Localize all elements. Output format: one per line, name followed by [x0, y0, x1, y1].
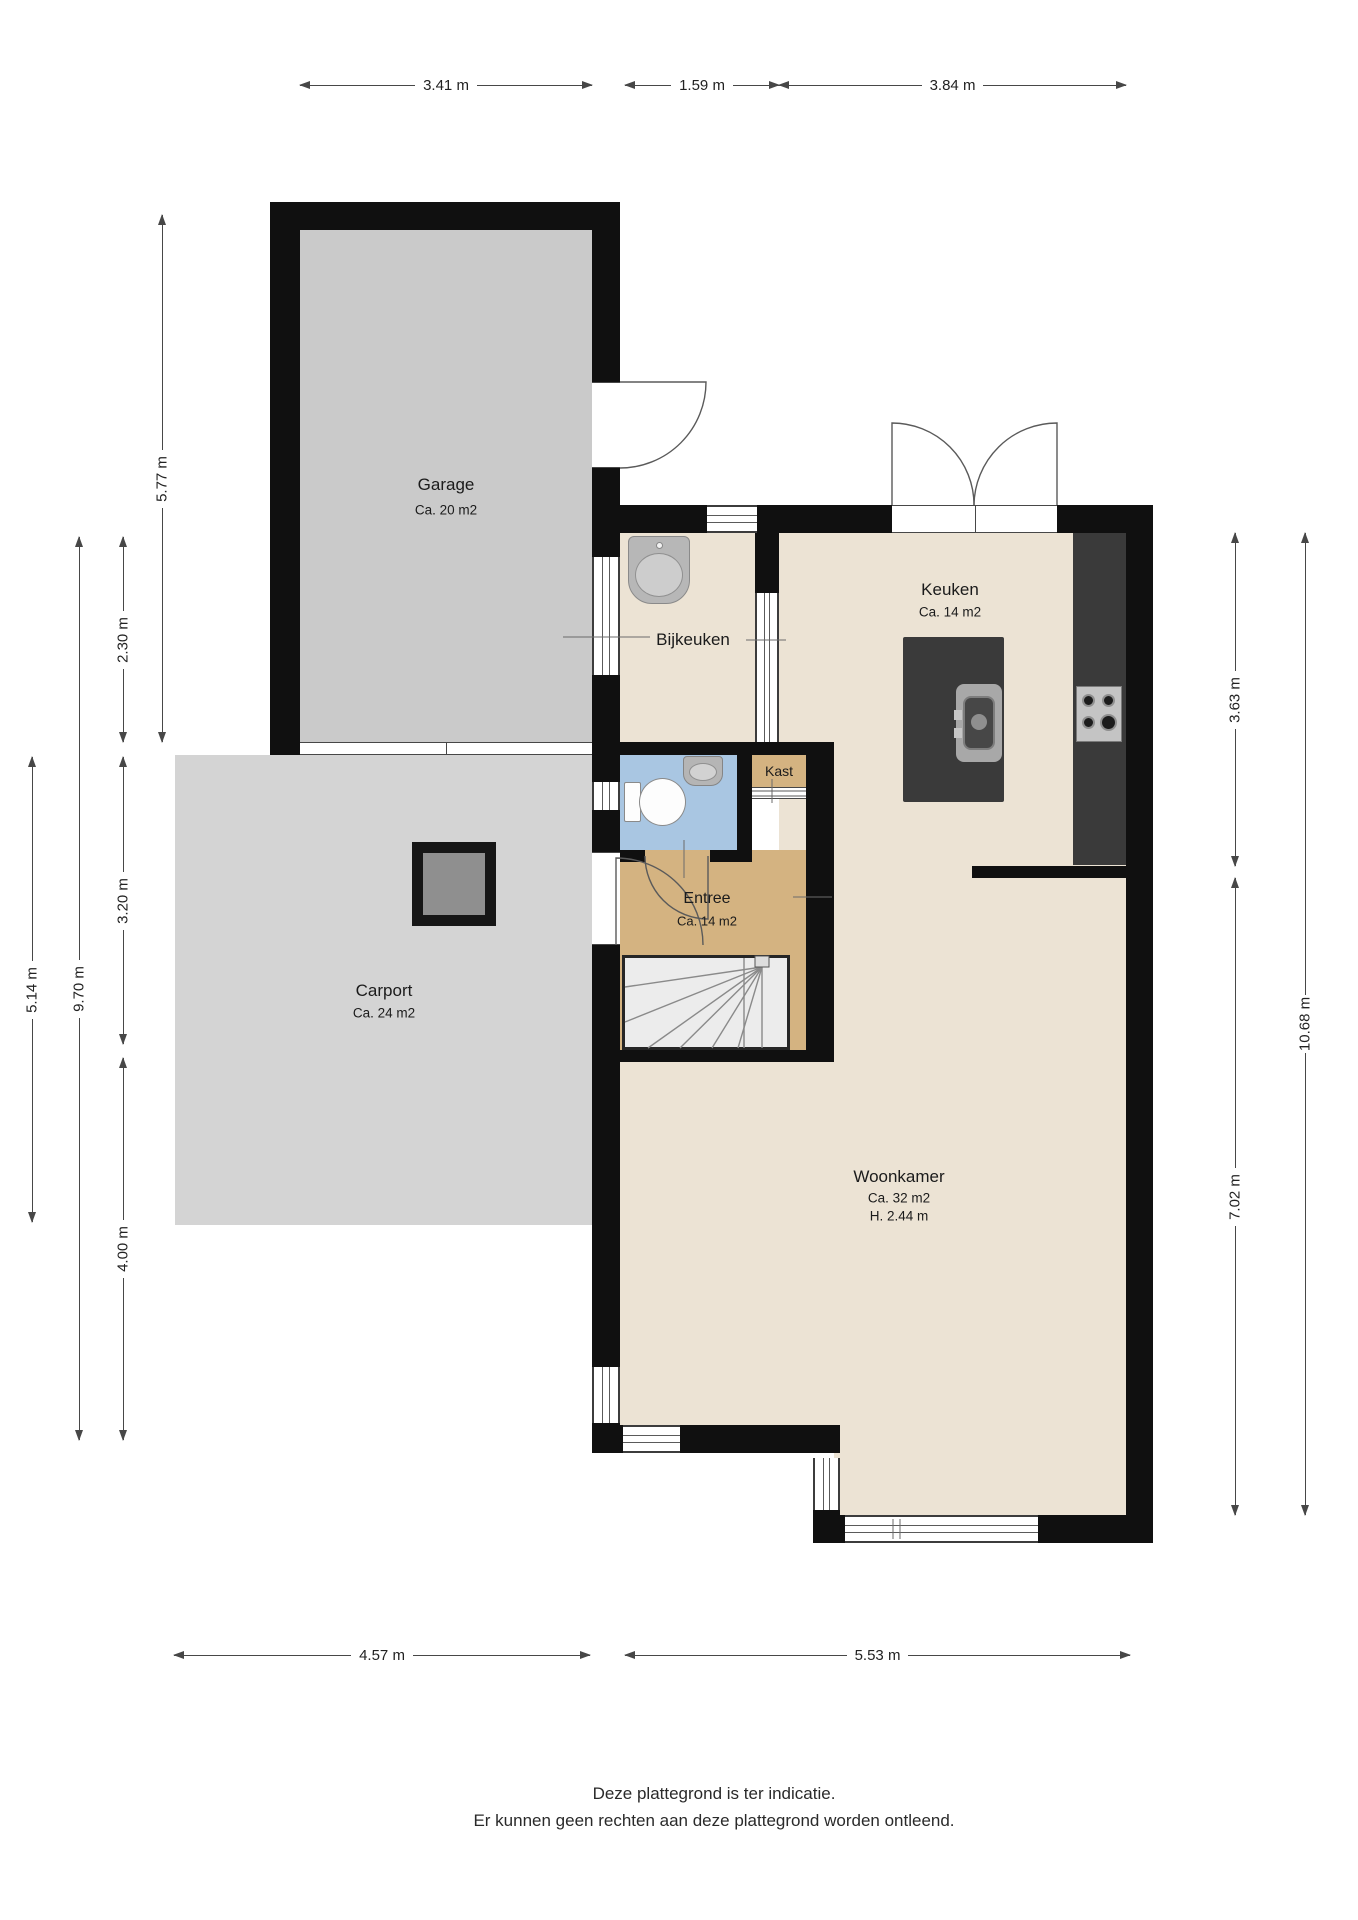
- wall: [270, 202, 592, 230]
- wall: [710, 850, 752, 862]
- toilet-icon: [624, 778, 688, 826]
- dim-label: 7.02 m: [1228, 1174, 1243, 1220]
- floorplan-canvas: Garage Ca. 20 m2 Bijkeuken Keuken Ca. 14…: [0, 0, 1358, 1920]
- sink-handle: [954, 728, 962, 738]
- wall: [592, 505, 707, 533]
- utility-sink-icon: [628, 536, 690, 604]
- front-door-opening: [592, 852, 620, 945]
- wall: [592, 675, 620, 782]
- dim-left-4-00: 4.00 m: [115, 1058, 131, 1440]
- wall: [620, 850, 645, 862]
- burner: [1082, 694, 1095, 707]
- dim-label: 10.68 m: [1298, 997, 1313, 1051]
- carport-post: [412, 842, 496, 926]
- room-label-garage: Garage: [418, 475, 475, 495]
- dim-label: 1.59 m: [671, 78, 733, 93]
- window: [813, 1458, 840, 1510]
- wall: [592, 945, 620, 1367]
- room-label-keuken: Keuken: [921, 580, 979, 600]
- french-door-left-arc: [892, 423, 974, 505]
- window: [592, 782, 620, 810]
- dim-bottom-1: 4.57 m: [174, 1647, 590, 1663]
- room-area-keuken: Ca. 14 m2: [919, 605, 981, 620]
- disclaimer-line-1: Deze plattegrond is ter indicatie.: [473, 1780, 954, 1807]
- dim-left-5-14: 5.14 m: [24, 757, 40, 1222]
- cooktop-icon: [1076, 686, 1122, 742]
- window: [623, 1425, 680, 1453]
- stairs: [622, 955, 790, 1050]
- room-area-entree: Ca. 14 m2: [677, 914, 737, 929]
- dim-label: 5.14 m: [25, 967, 40, 1013]
- dim-left-3-20: 3.20 m: [115, 757, 131, 1044]
- wall: [757, 505, 892, 533]
- burner: [1100, 714, 1117, 731]
- french-door-opening: [892, 505, 1057, 533]
- toilet-bowl: [639, 778, 686, 826]
- window: [845, 1515, 1038, 1543]
- sink-basin: [635, 553, 683, 597]
- room-label-woonkamer: Woonkamer: [853, 1167, 944, 1187]
- wall: [1038, 1515, 1153, 1543]
- dim-top-1: 3.41 m: [300, 77, 592, 93]
- wall: [680, 1425, 840, 1453]
- window: [592, 1367, 620, 1423]
- wall: [592, 533, 620, 557]
- dim-label: 3.63 m: [1228, 677, 1243, 723]
- wall: [620, 1050, 834, 1062]
- wall: [592, 202, 620, 382]
- wall: [592, 810, 620, 852]
- dim-label: 3.84 m: [922, 78, 984, 93]
- dim-label: 3.41 m: [415, 78, 477, 93]
- disclaimer-line-2: Er kunnen geen rechten aan deze plattegr…: [473, 1807, 954, 1834]
- sink-handle: [954, 710, 962, 720]
- room-area-garage: Ca. 20 m2: [415, 503, 477, 518]
- faucet-icon: [656, 542, 663, 549]
- dim-left-5-77: 5.77 m: [154, 215, 170, 742]
- room-label-bijkeuken: Bijkeuken: [656, 630, 730, 650]
- room-label-carport: Carport: [356, 981, 413, 1001]
- kast-sliding-door: [752, 787, 806, 799]
- garage-side-door-arc: [620, 382, 706, 468]
- garage-door-opening: [592, 382, 620, 468]
- room-area-carport: Ca. 24 m2: [353, 1006, 415, 1021]
- window: [707, 505, 757, 533]
- room-label-kast: Kast: [765, 763, 793, 779]
- room-area-woonkamer: Ca. 32 m2: [868, 1191, 930, 1206]
- disclaimer: Deze plattegrond is ter indicatie. Er ku…: [473, 1780, 954, 1834]
- dim-left-9-70: 9.70 m: [71, 537, 87, 1440]
- basin-bowl: [689, 763, 717, 781]
- dim-bottom-2: 5.53 m: [625, 1647, 1130, 1663]
- dim-top-2: 1.59 m: [625, 77, 779, 93]
- garage-overhead-door: [300, 742, 592, 755]
- dim-label: 5.53 m: [847, 1648, 909, 1663]
- dim-label: 3.20 m: [116, 878, 131, 924]
- wall: [592, 1425, 623, 1453]
- dim-label: 4.00 m: [116, 1226, 131, 1272]
- wall: [806, 742, 834, 1062]
- dim-right-3-63: 3.63 m: [1227, 533, 1243, 866]
- dim-left-2-30: 2.30 m: [115, 537, 131, 742]
- interior-window: [755, 593, 779, 742]
- window: [592, 557, 620, 675]
- dim-right-7-02: 7.02 m: [1227, 878, 1243, 1515]
- burner: [1082, 716, 1095, 729]
- dim-label: 2.30 m: [116, 617, 131, 663]
- wall: [270, 202, 300, 755]
- hand-basin-icon: [683, 756, 723, 786]
- dim-label: 9.70 m: [72, 966, 87, 1012]
- dim-label: 5.77 m: [155, 456, 170, 502]
- room-height-woonkamer: H. 2.44 m: [870, 1209, 929, 1224]
- wall: [737, 755, 752, 850]
- dim-label: 4.57 m: [351, 1648, 413, 1663]
- faucet-icon: [971, 714, 987, 730]
- woonkamer-floor: [620, 1062, 1126, 1425]
- room-label-entree: Entree: [683, 890, 730, 908]
- wall: [813, 1515, 845, 1543]
- burner: [1102, 694, 1115, 707]
- wall: [755, 533, 779, 593]
- french-door-right-arc: [974, 423, 1057, 505]
- island-sink-icon: [956, 684, 1002, 762]
- dim-top-3: 3.84 m: [779, 77, 1126, 93]
- wall: [1126, 505, 1153, 1543]
- dim-right-10-68: 10.68 m: [1297, 533, 1313, 1515]
